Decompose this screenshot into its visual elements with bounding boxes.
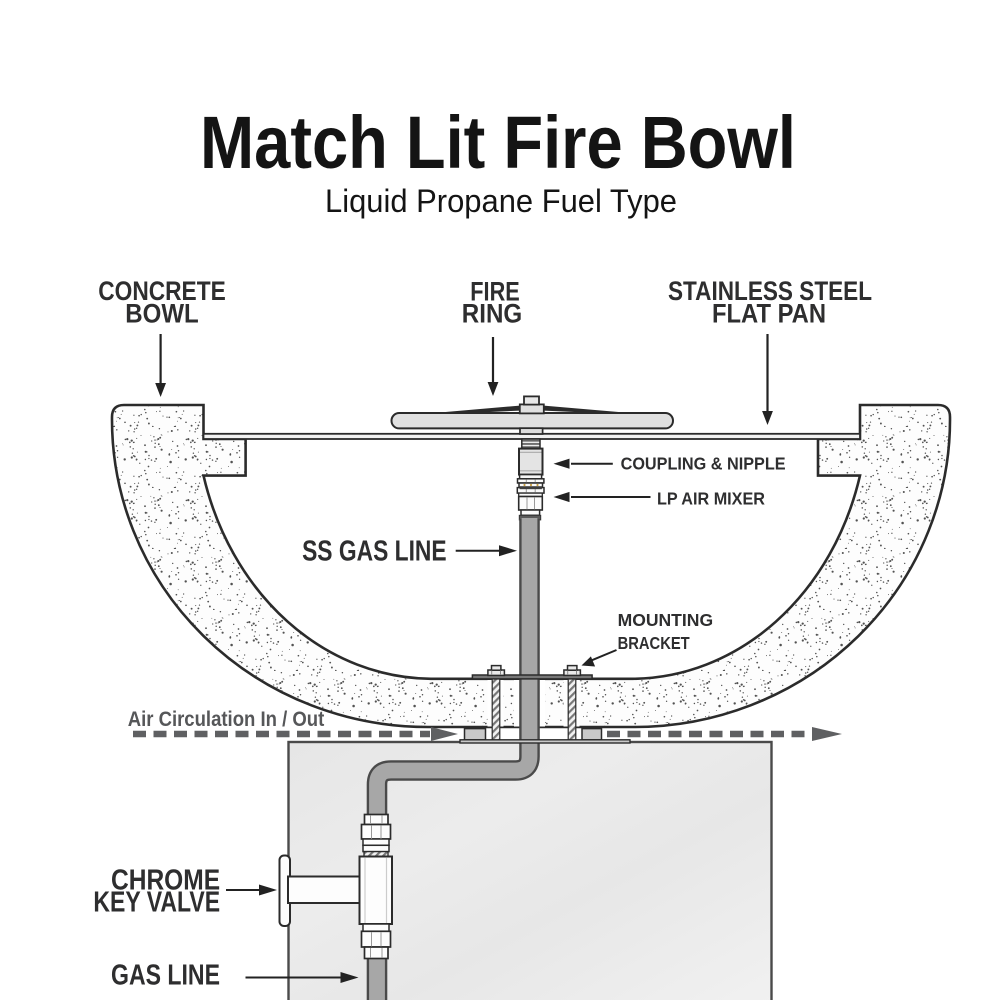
svg-text:LP AIR MIXER: LP AIR MIXER bbox=[657, 488, 765, 508]
svg-text:COUPLING & NIPPLE: COUPLING & NIPPLE bbox=[621, 454, 786, 474]
svg-text:FLAT PAN: FLAT PAN bbox=[712, 298, 826, 328]
svg-text:RING: RING bbox=[462, 299, 522, 329]
svg-text:MOUNTING: MOUNTING bbox=[618, 610, 714, 630]
svg-text:KEY VALVE: KEY VALVE bbox=[93, 886, 220, 918]
svg-text:Air Circulation In / Out: Air Circulation In / Out bbox=[128, 708, 325, 731]
svg-text:Match Lit Fire Bowl: Match Lit Fire Bowl bbox=[200, 101, 796, 184]
svg-text:Liquid Propane Fuel Type: Liquid Propane Fuel Type bbox=[325, 183, 677, 219]
svg-text:BOWL: BOWL bbox=[125, 298, 198, 328]
svg-text:SS GAS LINE: SS GAS LINE bbox=[302, 536, 447, 568]
svg-text:BRACKET: BRACKET bbox=[618, 633, 690, 653]
svg-text:GAS LINE: GAS LINE bbox=[111, 959, 220, 991]
